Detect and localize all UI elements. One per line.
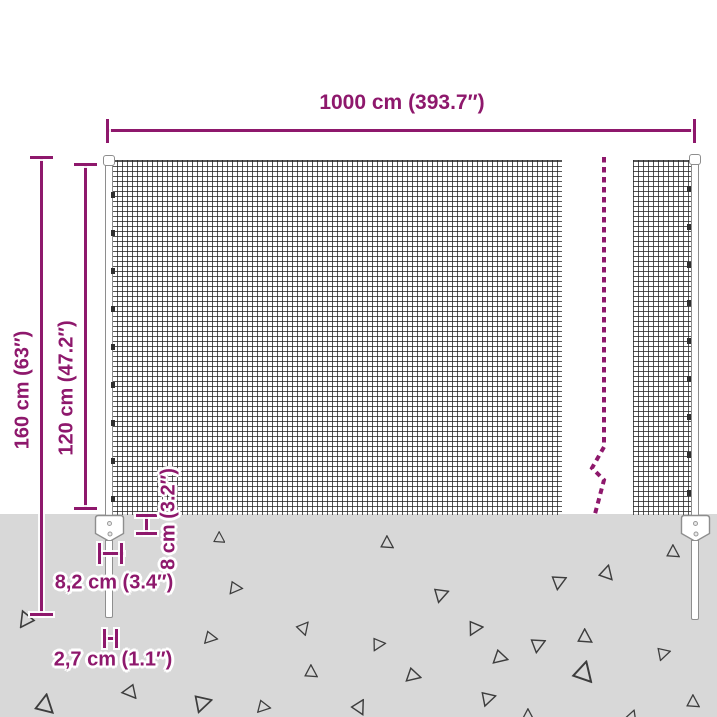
anchor-height-dimension-label: 8 cm (3.2″) [158, 468, 181, 570]
dimension-tick [136, 514, 157, 517]
dimension-tick [74, 163, 97, 166]
dimension-tick [98, 543, 101, 564]
fence-post-left-hooks [111, 192, 115, 510]
anchor-width-dimension-label: 8,2 cm (3.4″) [55, 572, 174, 595]
fence-post-left-cap [103, 155, 115, 166]
fence-post-right-cap [689, 154, 701, 165]
dimension-tick [693, 119, 696, 143]
fence-post-right-hooks [687, 186, 691, 510]
ground-anchor-plate-left [94, 514, 125, 543]
dimension-line-mesh-height [84, 164, 87, 510]
dimension-tick [74, 507, 97, 510]
dimension-tick [103, 629, 106, 648]
spike-width-dimension-label: 2,7 cm (1.1″) [54, 649, 173, 672]
fence-mesh-main [112, 160, 562, 515]
dimension-tick [30, 613, 53, 616]
width-dimension-label: 1000 cm (393.7″) [319, 91, 484, 115]
fence-dimension-diagram: 1000 cm (393.7″) 160 cm (63″) 120 cm (47… [0, 0, 717, 717]
ground-spike-right [691, 540, 699, 620]
ground-anchor-plate-right [680, 514, 711, 543]
fence-post-right [691, 162, 699, 516]
total-height-dimension-label: 160 cm (63″) [12, 331, 35, 450]
dimension-tick [106, 119, 109, 143]
dimension-tick [136, 532, 157, 535]
dimension-line-width [107, 129, 696, 132]
dimension-tick [30, 156, 53, 159]
dimension-tick [115, 629, 118, 648]
dimension-tick [120, 543, 123, 564]
fence-mesh-right-segment [633, 160, 692, 515]
dimension-line-total-height [40, 157, 43, 616]
mesh-height-dimension-label: 120 cm (47.2″) [56, 320, 79, 455]
